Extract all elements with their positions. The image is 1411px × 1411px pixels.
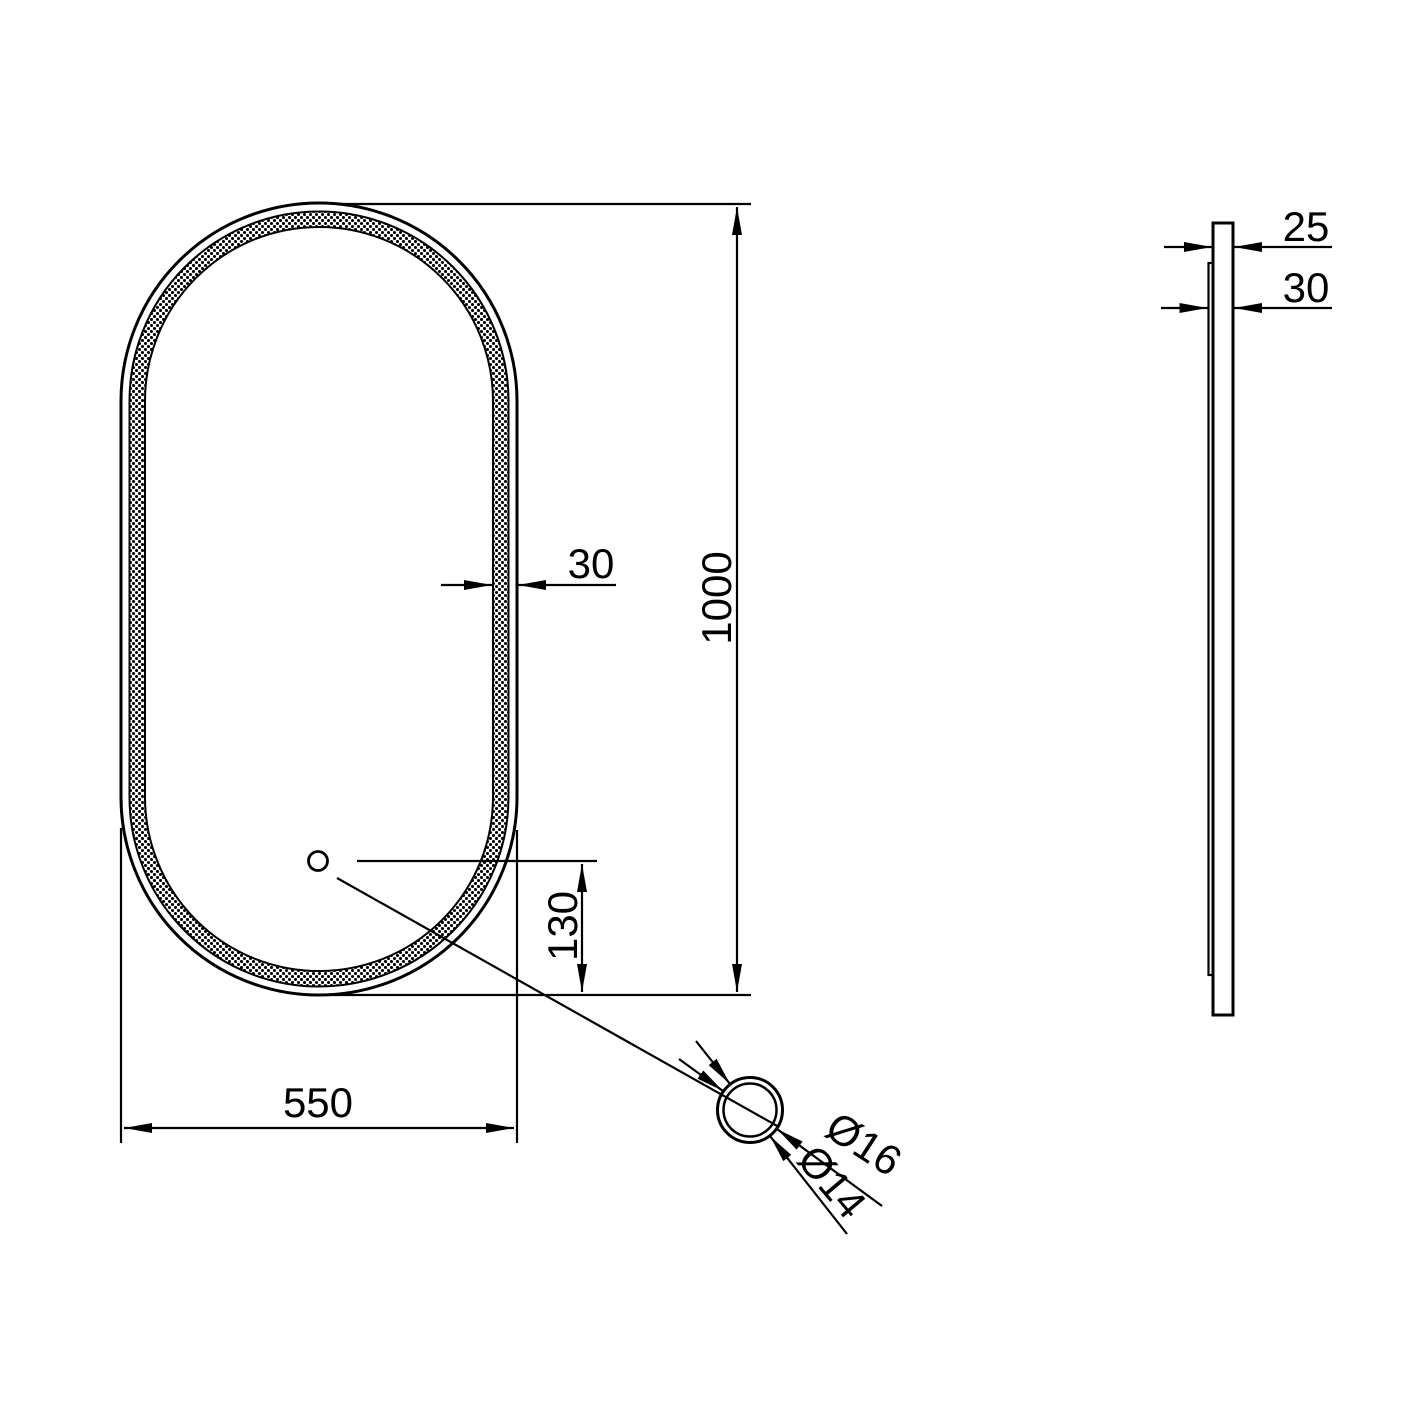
mirror-technical-drawing: 1000 30 130 550 Ø16 Ø14	[0, 0, 1411, 1411]
technical-drawing-canvas: 1000 30 130 550 Ø16 Ø14	[0, 0, 1411, 1411]
glass-thickness-label: 25	[1283, 203, 1330, 250]
band-width-label: 30	[568, 540, 615, 587]
side-view-glass-panel	[1213, 223, 1233, 1015]
mirror-front-view	[121, 203, 517, 995]
mirror-side-view	[1209, 223, 1234, 1015]
width-dimension-label: 550	[283, 1079, 353, 1126]
height-dimension-label: 1000	[693, 551, 740, 644]
sensor-offset-label: 130	[539, 891, 586, 961]
total-depth-label: 30	[1283, 264, 1330, 311]
touch-sensor	[309, 852, 328, 871]
